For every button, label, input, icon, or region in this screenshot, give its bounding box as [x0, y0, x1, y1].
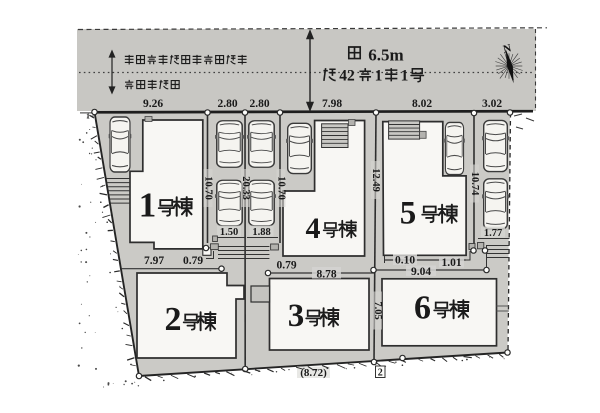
svg-text:1: 1 — [139, 186, 157, 225]
svg-text:10.74: 10.74 — [469, 172, 480, 196]
svg-text:3.02: 3.02 — [482, 98, 502, 110]
svg-text:2.80: 2.80 — [217, 98, 237, 110]
svg-text:1: 1 — [401, 68, 409, 85]
svg-text:3: 3 — [288, 298, 305, 334]
svg-text:20.33: 20.33 — [240, 176, 251, 200]
svg-text:7.98: 7.98 — [322, 98, 342, 110]
svg-text:8.78: 8.78 — [316, 269, 336, 281]
svg-text:2: 2 — [165, 301, 182, 338]
svg-text:1.01: 1.01 — [441, 257, 461, 269]
svg-text:1: 1 — [375, 68, 383, 85]
svg-text:1.77: 1.77 — [484, 228, 502, 239]
svg-text:0.79: 0.79 — [183, 255, 203, 267]
svg-text:2.80: 2.80 — [249, 98, 269, 110]
svg-text:6: 6 — [414, 290, 431, 327]
svg-text:10.70: 10.70 — [276, 176, 287, 200]
svg-text:9.26: 9.26 — [143, 98, 163, 110]
svg-text:7.05: 7.05 — [372, 301, 383, 319]
svg-text:42: 42 — [339, 68, 355, 85]
svg-text:10.70: 10.70 — [203, 176, 214, 200]
svg-text:7.97: 7.97 — [144, 255, 164, 267]
svg-text:5: 5 — [400, 196, 417, 232]
svg-text:8.02: 8.02 — [412, 98, 432, 110]
svg-text:12.49: 12.49 — [370, 168, 381, 192]
svg-text:2: 2 — [378, 368, 383, 379]
svg-text:1.50: 1.50 — [220, 227, 238, 238]
svg-text:1.88: 1.88 — [252, 227, 270, 238]
svg-text:4: 4 — [306, 212, 321, 245]
svg-text:6.5m: 6.5m — [368, 46, 403, 65]
svg-text:0.79: 0.79 — [276, 260, 296, 272]
svg-text:0.10: 0.10 — [395, 255, 415, 267]
svg-text:9.04: 9.04 — [411, 266, 431, 278]
svg-text:1: 1 — [86, 112, 90, 121]
